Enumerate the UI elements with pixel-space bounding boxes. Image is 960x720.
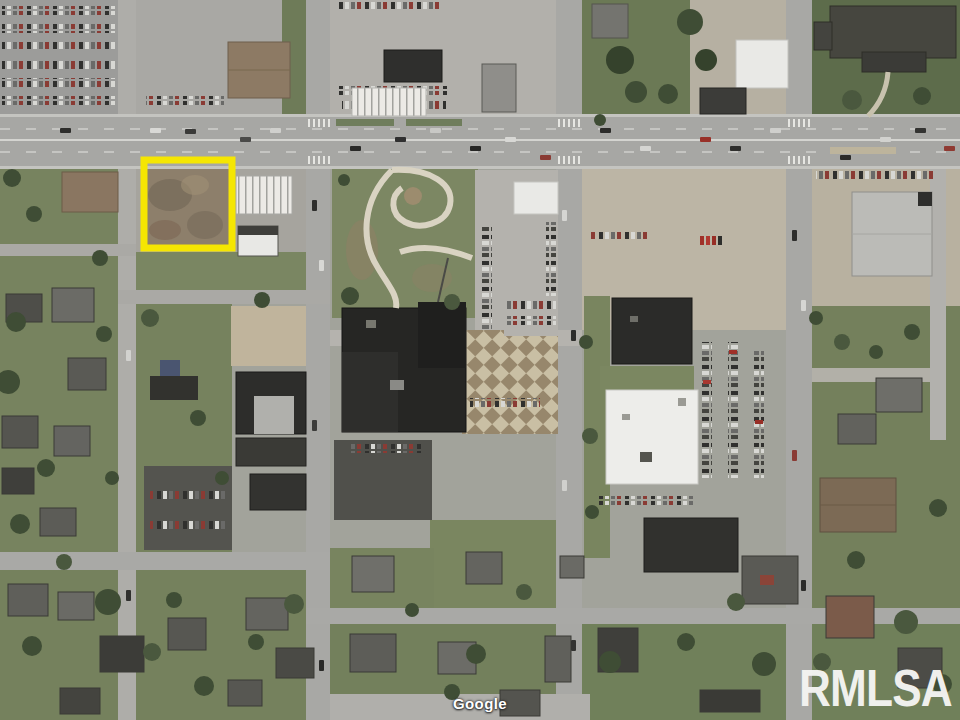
satellite-map (0, 0, 960, 720)
google-attribution: Google (453, 695, 507, 712)
listing-photo: Google RMLSA (0, 0, 960, 720)
rmlsa-watermark: RMLSA (799, 658, 952, 718)
